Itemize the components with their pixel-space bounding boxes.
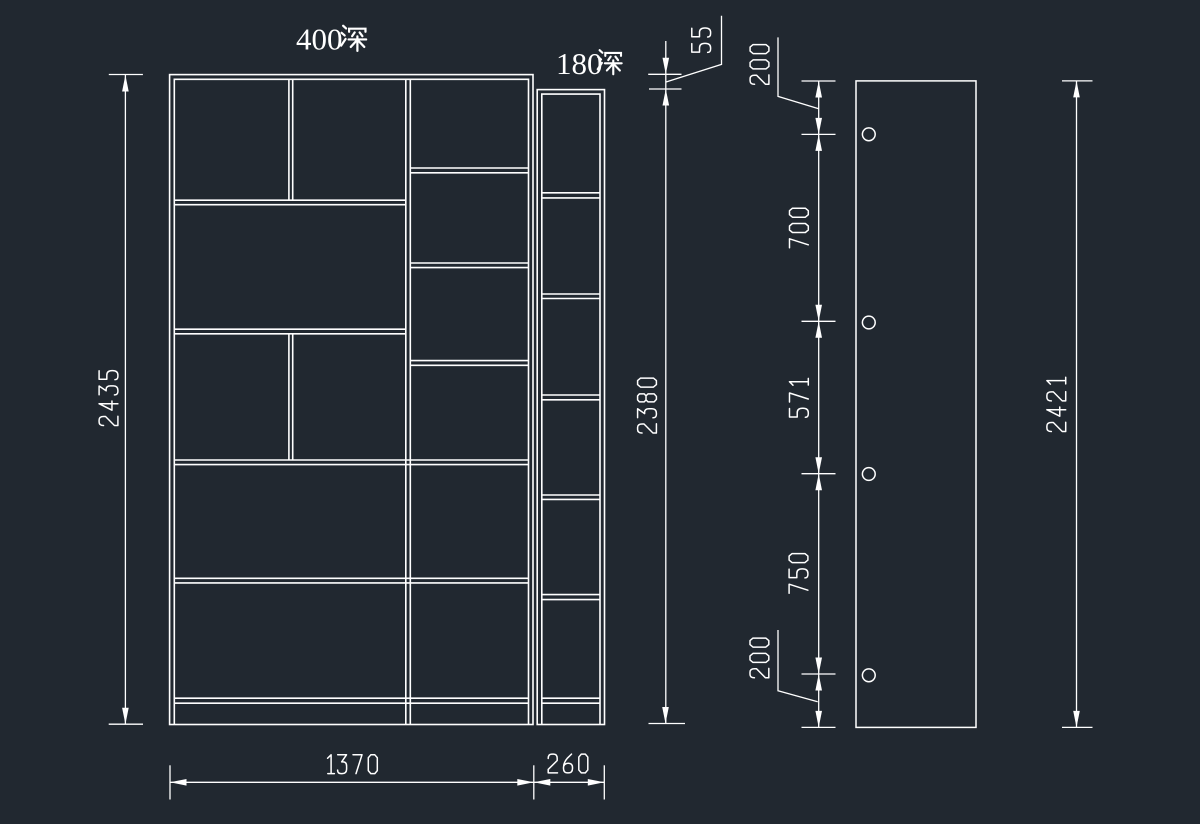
svg-text:180: 180	[556, 46, 603, 81]
svg-text:400: 400	[296, 22, 343, 57]
